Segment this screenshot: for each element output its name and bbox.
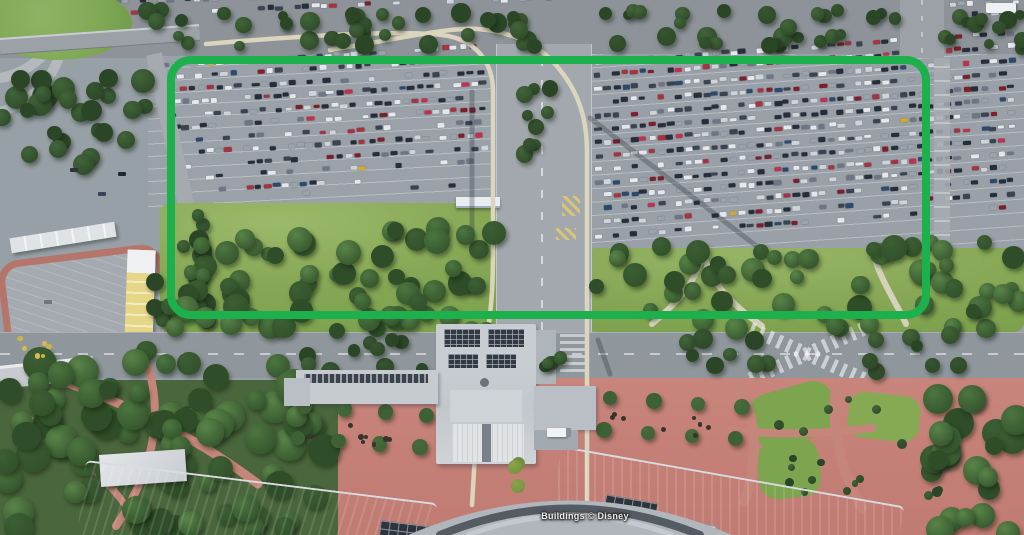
service-truck [547, 428, 567, 437]
white-canopy-row [9, 222, 116, 253]
crosswalk-south [560, 334, 588, 376]
roof-vent-grid [448, 354, 478, 368]
north-road [900, 0, 944, 58]
roof-mid-band [450, 390, 522, 422]
lawn-se-3 [846, 390, 922, 443]
rooftop-unit [676, 519, 717, 535]
roof-vent-grid [486, 354, 516, 368]
ttc-east-annex [534, 386, 596, 430]
bus-loop-car-1 [70, 168, 78, 172]
bus-vehicle [986, 3, 1016, 13]
bus-loop-car-2 [98, 192, 106, 196]
ttc-main-hall [436, 324, 536, 464]
roof-vent-grid [488, 329, 524, 347]
highlight-annotation [167, 56, 930, 319]
aerial-map-canvas[interactable]: Buildings © Disney [0, 0, 1024, 535]
ttc-west-annex [284, 378, 310, 406]
monorail-bay-slot [482, 424, 491, 462]
bus-loop-car-3 [118, 172, 126, 176]
roof-vent-grid [444, 329, 480, 347]
skylight-strip [304, 374, 428, 383]
bus-loop-car-4 [44, 300, 52, 304]
attribution-watermark: Buildings © Disney [500, 511, 670, 521]
solar-panel-grid [377, 520, 433, 535]
ttc-east-tower [536, 330, 556, 384]
east-lot-access-lane [934, 58, 950, 250]
ttc-west-wing [296, 370, 438, 404]
service-truck-cab [566, 428, 571, 437]
roof-dome-vent [480, 378, 489, 387]
